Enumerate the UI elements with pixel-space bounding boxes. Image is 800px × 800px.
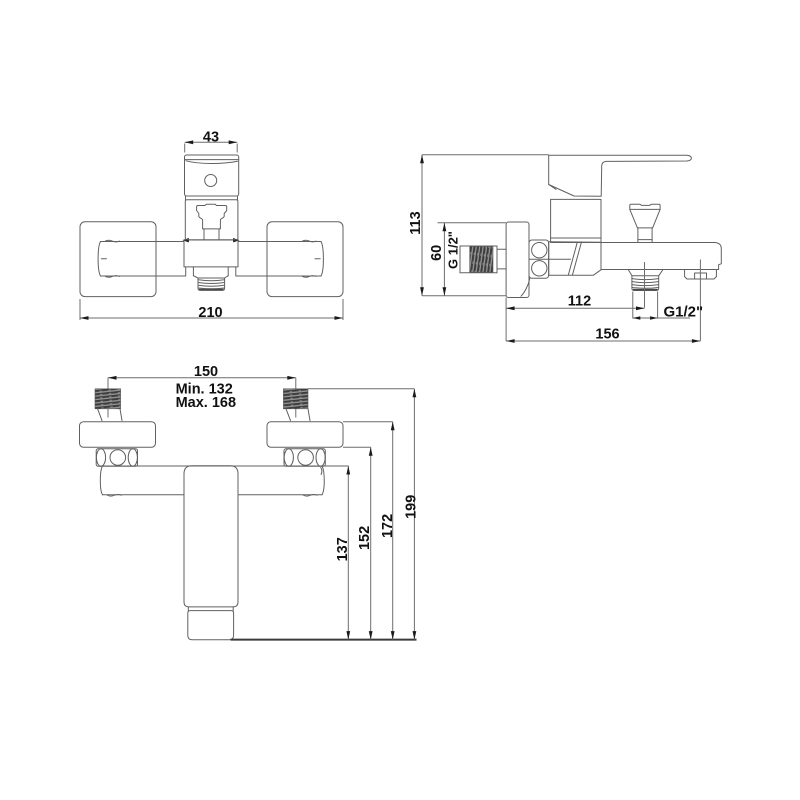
- svg-text:156: 156: [595, 327, 619, 343]
- svg-text:60: 60: [429, 245, 445, 261]
- svg-text:210: 210: [198, 305, 222, 321]
- svg-text:172: 172: [380, 514, 396, 538]
- svg-text:150: 150: [194, 364, 218, 380]
- svg-text:112: 112: [568, 294, 591, 310]
- svg-text:G1/2": G1/2": [663, 304, 703, 321]
- svg-text:113: 113: [408, 211, 424, 234]
- svg-text:199: 199: [404, 495, 420, 519]
- svg-text:137: 137: [335, 537, 351, 561]
- svg-text:G 1/2": G 1/2": [445, 231, 460, 269]
- svg-text:152: 152: [357, 526, 373, 550]
- svg-text:Max. 168: Max. 168: [176, 395, 236, 411]
- svg-text:43: 43: [203, 130, 219, 146]
